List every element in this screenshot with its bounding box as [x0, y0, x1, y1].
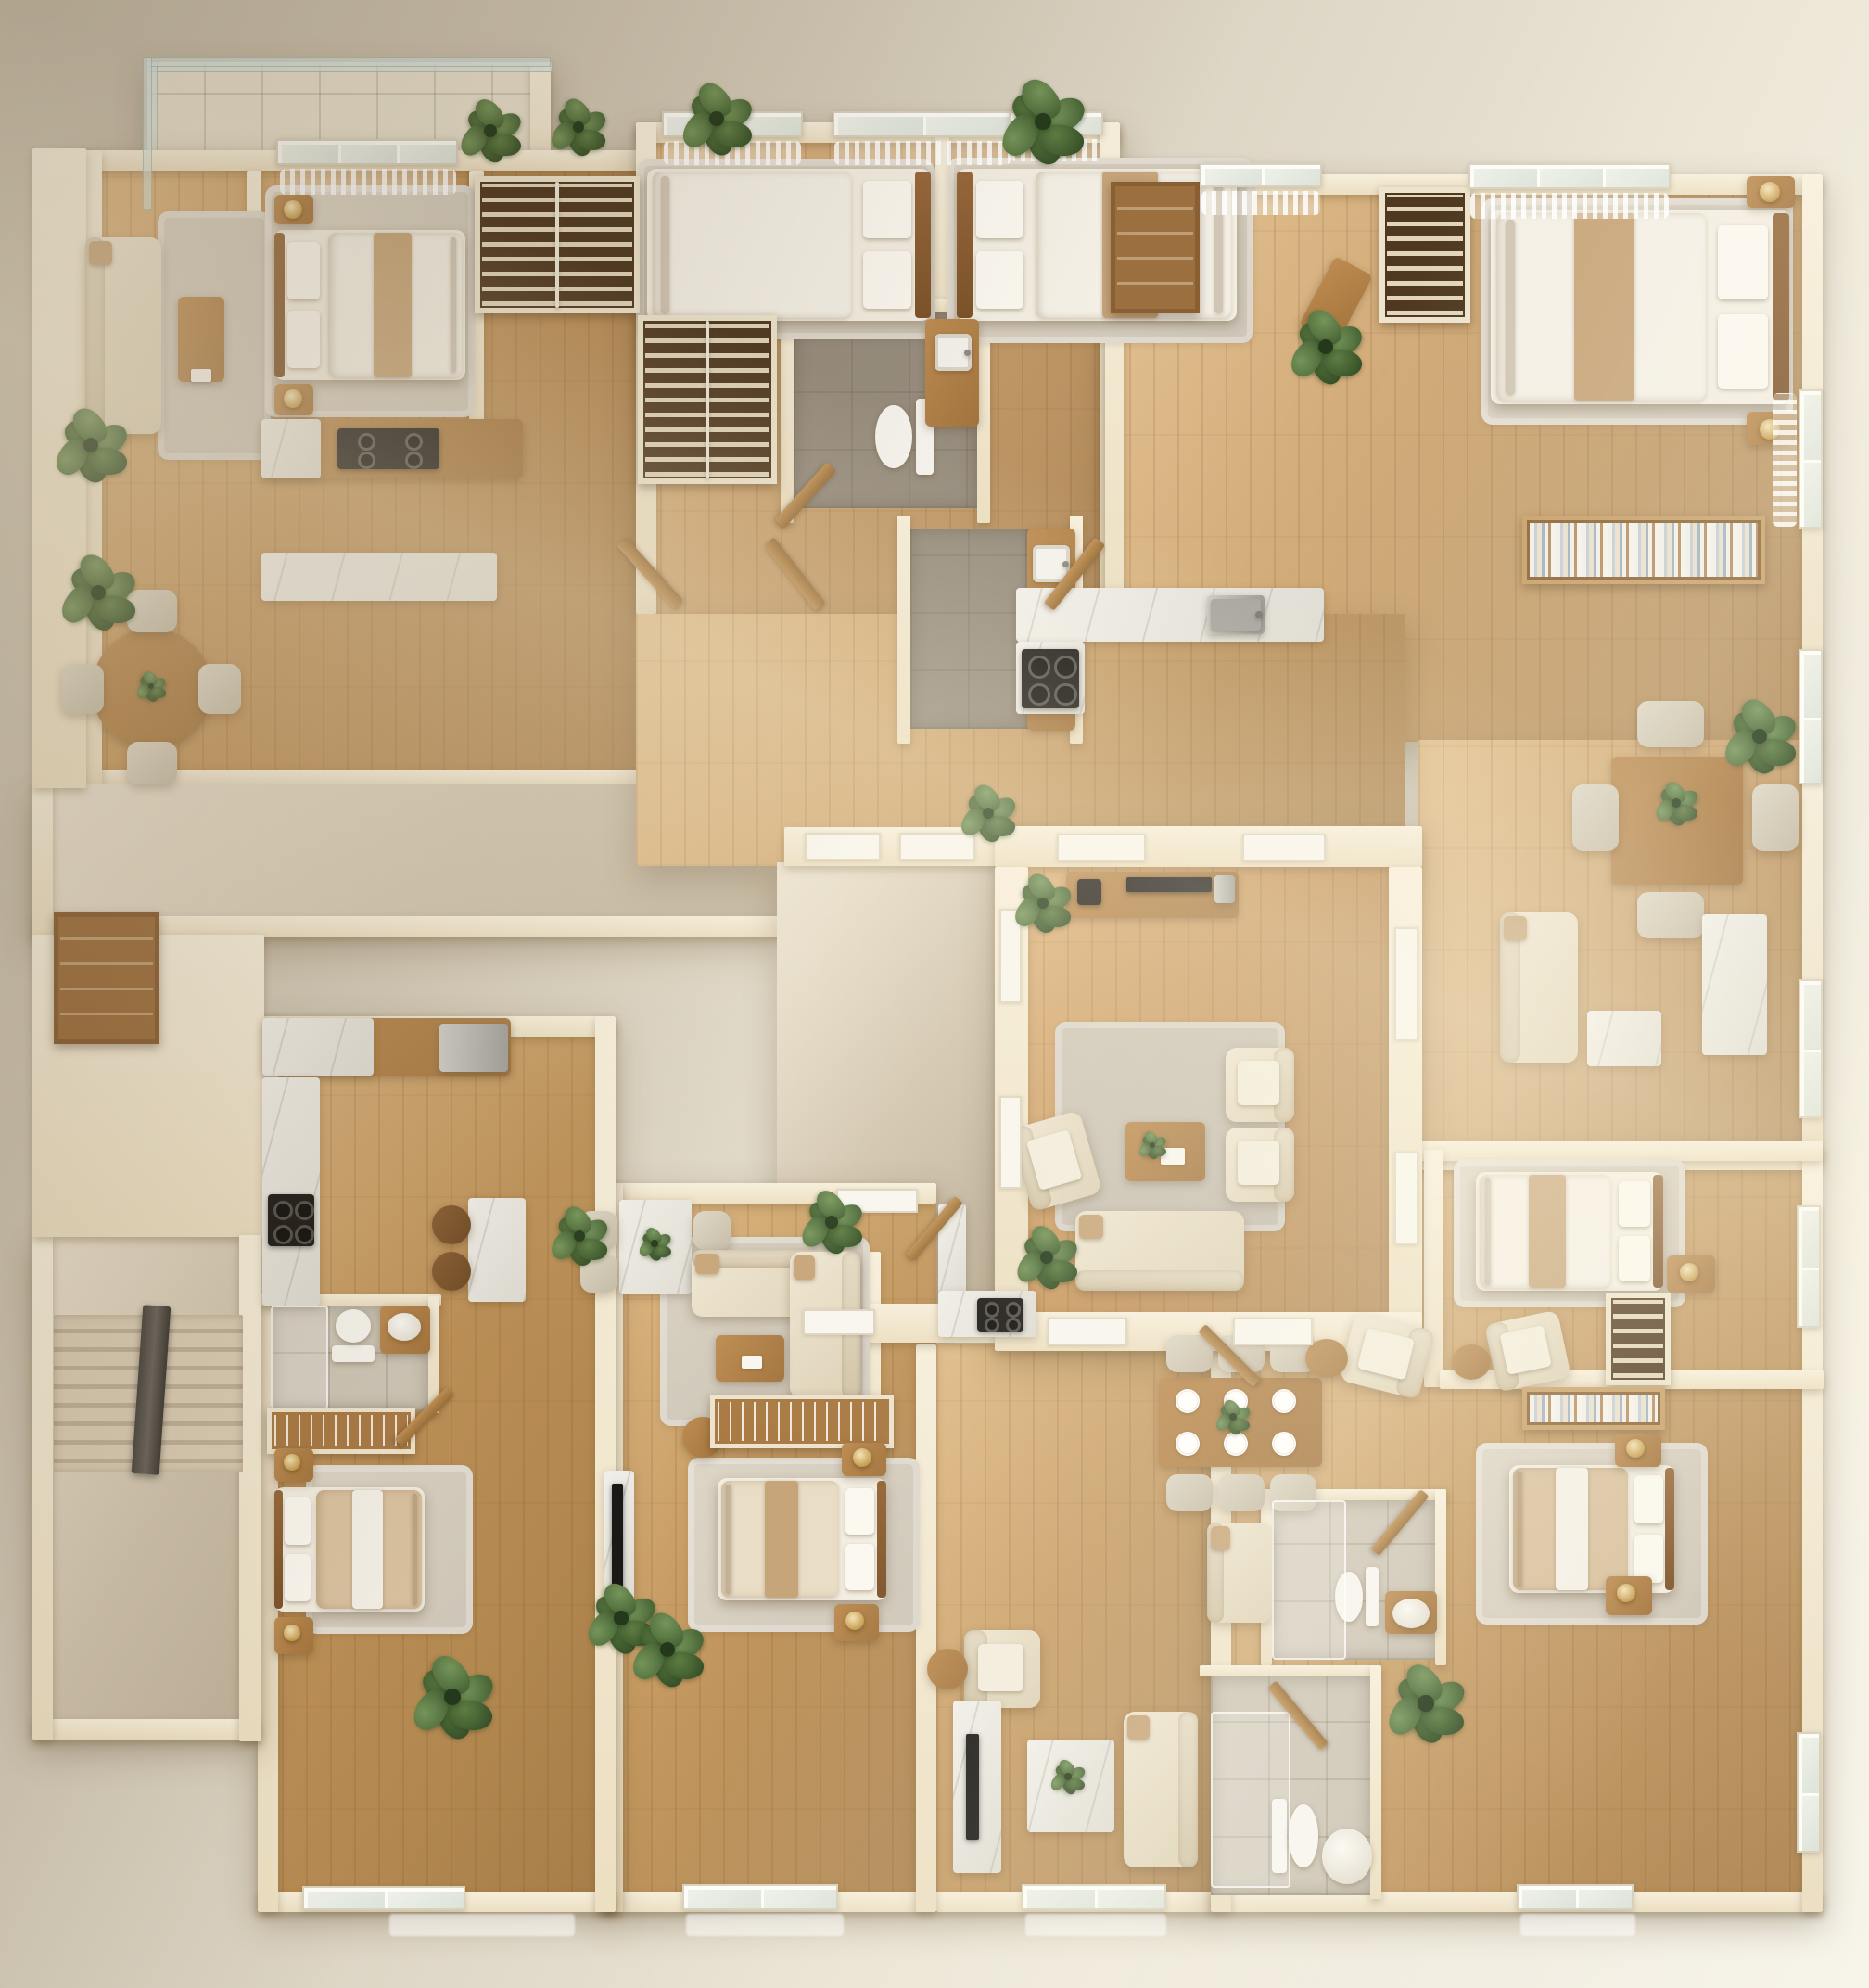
lounge-loveseat: [1124, 1712, 1198, 1867]
studio-armchair-3: [1226, 1128, 1294, 1202]
console-cs-marble-vein: [1702, 914, 1767, 1055]
bookshelf-c-books: [1530, 523, 1758, 577]
loveseat-cs-cushion-pillow: [1504, 916, 1527, 940]
dining-e-chair-3: [693, 1211, 731, 1250]
hanger-rail-g-hangers: [274, 1415, 408, 1446]
bathg-basin: [388, 1313, 421, 1341]
plant-a-dining: [65, 560, 132, 625]
window-cs-2-pane-1: [1804, 1052, 1821, 1117]
bathg-toilet: [332, 1309, 375, 1363]
plant-lounge-table: [1051, 1762, 1085, 1791]
studio-armchair-2-seat: [1238, 1061, 1278, 1105]
studio-coffee-machine: [1077, 879, 1101, 905]
hanger-rail-g: [267, 1408, 415, 1454]
side-table-cs-vein: [1587, 1011, 1661, 1066]
bed-f-1-fold: [1485, 1178, 1491, 1284]
curtain-c-1: [1201, 191, 1320, 215]
curtain-b-2: [834, 141, 1011, 165]
lamp-c-1: [1760, 182, 1780, 202]
window-f-bottom-pane-1: [1579, 1890, 1633, 1908]
window-e-bottom-2: [1022, 1884, 1166, 1910]
window-cs-1-pane-1: [1804, 720, 1821, 784]
cabinet-c-shelves: [1117, 188, 1193, 307]
plant-f-dining: [1216, 1402, 1250, 1432]
bed-c: [1491, 210, 1789, 404]
bed-f-1-throw: [1529, 1175, 1566, 1289]
bed-b-1-duvet: [653, 172, 851, 317]
window-cs-1: [1799, 649, 1823, 784]
wall-stair-right: [239, 1235, 261, 1741]
lamp-g-1: [284, 1454, 300, 1471]
window-cs-1-pane-0: [1804, 655, 1821, 718]
kitchen-g-cooktop: [268, 1194, 314, 1246]
bed-a-pillow-1: [287, 242, 320, 299]
bathf-shower: [1272, 1500, 1346, 1660]
plant-g-bedroom-center: [444, 1689, 461, 1705]
armchair-f-seat: [1357, 1328, 1415, 1381]
curtain-c-right: [1773, 393, 1797, 527]
plant-e-dining: [640, 1230, 669, 1257]
bath2-sink-1-faucet: [1062, 561, 1069, 567]
plant-f-center: [1392, 1660, 1459, 1747]
window-cs-2-pane-0: [1804, 985, 1821, 1050]
reading-chair-f-seat: [1500, 1325, 1552, 1374]
kitchen-c-sink-basin: [1211, 599, 1261, 631]
wall-bathe-top: [1200, 1665, 1379, 1676]
wardrobe-hanger-e: [710, 1395, 894, 1448]
window-b-2: [833, 111, 1012, 137]
bed-e: [718, 1478, 886, 1600]
bed-a-pillow-2: [287, 311, 320, 368]
bed-b-2-pillow-2: [976, 251, 1023, 309]
curtain-c-2: [1470, 193, 1669, 219]
bookshelf-f: [1522, 1387, 1665, 1430]
dining-f-chair-5: [1218, 1474, 1265, 1511]
dining-f-plate-5: [1224, 1432, 1248, 1456]
window-b-2-pane-1: [926, 117, 1011, 135]
closet-linen-a: [475, 176, 640, 313]
bed-e-headboard: [877, 1481, 886, 1599]
kitchenette-cooktop-burner: [1006, 1318, 1022, 1333]
dining-a-chair-s: [127, 742, 177, 784]
cabinet-c: [1111, 182, 1200, 313]
plant-b-top-2: [686, 83, 747, 154]
lamp-e-1: [853, 1448, 871, 1467]
sill-reflection-3: [1025, 1914, 1166, 1936]
bed-f-2-headboard: [1665, 1468, 1674, 1590]
kitchen-c-cooktop-burner: [1054, 656, 1077, 679]
bed-f-2: [1509, 1465, 1674, 1593]
tv-e: [612, 1484, 623, 1593]
unit-g-floor-wall-right: [595, 1016, 616, 1912]
kitchen-c-cooktop: [1022, 649, 1079, 708]
bed-a-fold: [451, 237, 456, 373]
window-a-bedroom-pane-0: [282, 145, 338, 163]
window-f-bottom-pane-0: [1522, 1890, 1576, 1908]
wardrobe-hanger-e-hangers: [718, 1402, 886, 1441]
window-f-right-1-pane-0: [1802, 1211, 1819, 1268]
dining-f-chair-4: [1166, 1474, 1213, 1511]
lamp-a-2: [284, 389, 302, 408]
bed-g-pillow-2: [285, 1554, 311, 1601]
kitchen-a-island-vein: [261, 553, 497, 601]
bathe-toilet-bowl: [1289, 1804, 1318, 1867]
sofa-a-living-cushion-pillow: [89, 241, 112, 265]
bed-c-pillow-1: [1718, 225, 1769, 299]
window-cs-2: [1799, 979, 1823, 1118]
closet-linen-a-divider: [555, 182, 559, 308]
window-e-bottom-1-pane-0: [688, 1890, 761, 1908]
bed-g: [274, 1487, 425, 1612]
bed-b-1: [647, 169, 931, 321]
plant-b-top-1: [554, 98, 603, 156]
dining-cs-chair-s: [1637, 892, 1704, 938]
bed-g-throw: [352, 1490, 382, 1610]
curtain-a-bedroom: [280, 169, 456, 195]
plant-f-center-center: [1418, 1695, 1433, 1711]
kitchen-c-cooktop-burner: [1028, 656, 1051, 679]
sofa-f-wall: [1207, 1523, 1272, 1623]
wall-bath2-left: [897, 516, 910, 744]
bed-c-fold: [1506, 220, 1515, 395]
side-table-cs: [1587, 1011, 1661, 1066]
slot-studio-bottom-2: [1233, 1318, 1313, 1345]
coffee-e-book: [742, 1356, 762, 1369]
kitchen-a-cooktop: [337, 428, 439, 469]
plant-cs-table: [1656, 784, 1697, 822]
window-f-right-1-pane-1: [1802, 1270, 1819, 1327]
bed-b-1-headboard: [915, 172, 931, 317]
plant-hall-desk: [1018, 868, 1068, 938]
studio-armchair-2: [1226, 1048, 1294, 1122]
sill-reflection-4: [1520, 1914, 1635, 1936]
window-a-bedroom-pane-2: [400, 145, 456, 163]
dining-a-chair-w: [61, 664, 104, 714]
kitchen-g-fridge: [439, 1024, 508, 1072]
hall-cabinet: [54, 912, 159, 1044]
sill-reflection-2: [686, 1914, 844, 1936]
slot-studio-left-2: [999, 1096, 1022, 1189]
kitchenette-cooktop-burner: [985, 1318, 1000, 1333]
plant-cs-table-center: [1672, 798, 1681, 808]
stool-g-2: [432, 1252, 471, 1291]
studio-sofa: [1075, 1211, 1244, 1291]
closet-linen-c: [1379, 187, 1470, 323]
dining-f-plate-1: [1176, 1389, 1200, 1413]
plant-g-kitchen: [554, 1205, 604, 1267]
bed-c-headboard: [1773, 213, 1789, 401]
kitchenette-cooktop: [977, 1298, 1023, 1332]
lamp-f-1: [1680, 1263, 1698, 1281]
bed-a-throw: [374, 233, 412, 377]
kitchen-c-sink: [1207, 595, 1265, 634]
bed-b-2-headboard: [957, 172, 973, 317]
terrace-glass-left: [143, 57, 152, 210]
lounge-tv: [966, 1734, 979, 1840]
bed-f-2-fold: [1518, 1472, 1522, 1587]
slot-studio-right-1: [1394, 927, 1418, 1040]
kitchen-g-cooktop-burner: [273, 1225, 293, 1244]
sofa-a-living: [85, 237, 161, 434]
slot-studio-top-1: [1057, 834, 1146, 861]
bed-f-2-pillow-1: [1634, 1475, 1662, 1523]
sill-reflection-1: [389, 1914, 575, 1936]
lamp-f-4: [1617, 1584, 1635, 1602]
dining-f-plate-6: [1272, 1432, 1296, 1456]
window-g-bottom-pane-1: [388, 1892, 464, 1908]
stool-g-1: [432, 1205, 471, 1244]
plant-e-top-center: [825, 1216, 838, 1229]
window-c-2-pane-1: [1540, 169, 1603, 187]
plant-lounge-table-center: [1064, 1773, 1072, 1780]
window-c-1-pane-0: [1205, 169, 1262, 185]
kitchen-a-marble: [261, 419, 321, 478]
bathf-basin: [1392, 1599, 1430, 1628]
lounge-loveseat-cushion-pillow: [1127, 1715, 1150, 1739]
dining-f-plate-3: [1272, 1389, 1296, 1413]
bed-e-fold: [726, 1485, 731, 1595]
window-e-bottom-2-pane-0: [1027, 1890, 1095, 1908]
kitchen-g-marble-top: [262, 1018, 374, 1076]
console-cs-marble: [1702, 914, 1767, 1055]
plant-hall-corner: [964, 786, 1012, 840]
stairwell-floor-wall-bottom: [32, 1719, 261, 1739]
bed-b-1-fold: [661, 176, 669, 313]
bed-a-headboard: [274, 233, 285, 377]
plant-studio-center: [1040, 1251, 1053, 1264]
kitchen-a-cooktop-burner: [405, 452, 423, 469]
kitchen-a-island: [261, 553, 497, 601]
plant-a-table: [137, 673, 165, 699]
bed-c-pillow-2: [1718, 314, 1769, 389]
sofa-a-living-back: [85, 237, 105, 434]
plant-f-dining-center: [1229, 1413, 1237, 1421]
bathf-toilet-tank: [1366, 1567, 1379, 1626]
studio-sofa-back: [1075, 1270, 1244, 1291]
dining-cs-chair-n: [1637, 701, 1704, 747]
kitchen-g-counter-left-vein: [262, 1077, 320, 1306]
dining-a-chair-e: [198, 664, 241, 714]
kitchen-g-island: [468, 1198, 526, 1302]
closet-linen-b: [638, 315, 777, 484]
plant-e-bottom-1-center: [614, 1611, 628, 1625]
studio-sofa-cushion-pillow: [1079, 1215, 1103, 1239]
slot-studio-bottom-1: [1048, 1318, 1127, 1345]
bed-e-pillow-2: [845, 1544, 874, 1590]
wall-bathe-right: [1370, 1665, 1381, 1899]
plant-a-living: [59, 408, 122, 482]
bathe-basin: [1322, 1829, 1372, 1884]
lounge-loveseat-back: [1178, 1712, 1198, 1867]
slot-hallc-south: [803, 1309, 875, 1335]
terrace-glass-top: [146, 57, 551, 67]
window-f-bottom: [1517, 1884, 1634, 1910]
bed-g-headboard: [274, 1490, 283, 1610]
kitchen-a-cooktop-burner: [358, 452, 375, 469]
dining-cs-chair-w: [1572, 784, 1619, 851]
window-g-bottom: [302, 1886, 465, 1910]
plant-e-top: [805, 1192, 858, 1252]
bathg-shower: [271, 1306, 328, 1409]
plant-studio-table: [1138, 1133, 1166, 1157]
kitchen-c-cooktop-burner: [1054, 683, 1077, 707]
lamp-g-2: [284, 1625, 300, 1641]
wc1-sink: [934, 334, 972, 371]
bed-b-1-pillow-1: [863, 181, 911, 238]
window-c-2: [1468, 163, 1671, 189]
bed-b-1-pillow-2: [863, 251, 911, 309]
kitchen-g-cooktop-burner: [295, 1201, 314, 1220]
window-f-right-2: [1797, 1732, 1821, 1853]
studio-armchair-3-seat: [1238, 1141, 1278, 1185]
window-e-bottom-2-pane-1: [1098, 1890, 1165, 1908]
reading-side-table: [1452, 1344, 1491, 1380]
plant-g-bedroom: [417, 1656, 488, 1738]
plant-studio: [1020, 1222, 1074, 1293]
bed-c-throw: [1574, 213, 1634, 401]
plant-b-top-2-center: [709, 111, 724, 126]
kitchen-g-island-vein: [468, 1198, 526, 1302]
dining-f-plate-4: [1176, 1432, 1200, 1456]
plant-e-dining-center: [651, 1240, 657, 1246]
plant-e-bottom-2: [636, 1615, 699, 1684]
studio-desk-laptop: [1214, 875, 1235, 903]
kitchen-g-cooktop-burner: [273, 1201, 293, 1220]
plant-terrace-center: [484, 124, 497, 137]
stairwell-floor-wall-left: [32, 1235, 53, 1739]
kitchenette-cooktop-burner: [1006, 1302, 1022, 1318]
slot-studio-top-2: [1242, 834, 1326, 861]
bed-f-1-headboard: [1653, 1175, 1663, 1289]
wall-e-f: [916, 1344, 936, 1912]
kitchenette-cooktop-burner: [985, 1302, 1000, 1318]
window-c-2-pane-2: [1606, 169, 1669, 187]
window-f-right-2-pane-1: [1802, 1796, 1819, 1852]
kitchen-a-cooktop-burner: [358, 433, 375, 451]
window-f-right-1: [1797, 1205, 1821, 1328]
bed-f-1: [1476, 1172, 1663, 1291]
hall-a-floor-wall-left: [32, 784, 53, 937]
wc1-toilet-bowl: [875, 405, 912, 469]
plant-terrace: [462, 104, 519, 158]
bathg-toilet-bowl: [336, 1309, 372, 1343]
dining-cs-chair-e: [1752, 784, 1799, 851]
window-e-bottom-1: [682, 1884, 838, 1910]
closet-linen-c-linens: [1387, 195, 1463, 315]
plant-c-corner: [1294, 304, 1357, 389]
sofa-e-top-cushion-pillow: [695, 1254, 719, 1274]
window-c-right: [1799, 389, 1823, 529]
plant-cs-corner: [1726, 705, 1793, 768]
lamp-e-2: [845, 1612, 864, 1630]
window-a-bedroom: [276, 139, 458, 165]
studio-desk-tray: [1126, 877, 1212, 892]
bed-f-1-pillow-2: [1619, 1236, 1650, 1281]
window-c-right-pane-0: [1804, 395, 1821, 460]
hall-cabinet-shelves: [60, 919, 153, 1038]
kitchen-a-marble-vein: [261, 419, 321, 478]
wardrobe-linen-f-linens: [1613, 1300, 1663, 1378]
bookshelf-c: [1522, 516, 1765, 584]
bathg-toilet-tank: [332, 1345, 375, 1361]
plant-b-top-3: [1007, 83, 1079, 159]
window-g-bottom-pane-0: [308, 1892, 385, 1908]
slot-studio-right-2: [1394, 1152, 1418, 1244]
wall-bathf-right: [1435, 1489, 1446, 1665]
kitchen-g-counter-left: [262, 1077, 320, 1306]
floor-plan-render: [0, 0, 1869, 1988]
coffee-table-a-paper: [191, 369, 211, 382]
lounge-side-table: [927, 1649, 968, 1689]
closet-linen-b-divider: [706, 321, 709, 478]
window-c-1-pane-1: [1265, 169, 1321, 185]
wall-cs-bottom: [1418, 1141, 1823, 1161]
bed-g-fold: [413, 1494, 417, 1606]
wc1-sink-faucet: [964, 350, 971, 356]
kitchen-a-cooktop-burner: [405, 433, 423, 451]
window-c-2-pane-0: [1474, 169, 1537, 187]
slot-hall-1: [805, 833, 881, 860]
window-c-1: [1200, 163, 1322, 187]
dining-f-chair-1: [1166, 1335, 1213, 1372]
window-e-bottom-1-pane-1: [764, 1890, 837, 1908]
kitchen-c-cooktop-burner: [1028, 683, 1051, 707]
bed-f-1-pillow-1: [1619, 1181, 1650, 1227]
bed-g-pillow-1: [285, 1497, 311, 1545]
bed-a: [274, 230, 465, 380]
bed-e-pillow-1: [845, 1488, 874, 1535]
sofa-f-wall-cushion-pillow: [1211, 1526, 1230, 1550]
bed-b-2-pillow-1: [976, 181, 1023, 238]
bookshelf-f-books: [1530, 1395, 1658, 1422]
window-c-right-pane-1: [1804, 463, 1821, 528]
lounge-armchair: [964, 1630, 1040, 1708]
bed-f-2-throw: [1556, 1468, 1589, 1590]
window-a-bedroom-pane-1: [341, 145, 398, 163]
loveseat-cs: [1500, 912, 1578, 1063]
lamp-a-1: [284, 200, 302, 219]
lounge-armchair-seat: [978, 1644, 1023, 1690]
window-b-2-pane-0: [838, 117, 923, 135]
kitchen-g-cooktop-burner: [295, 1225, 314, 1244]
kitchen-g-marble-top-vein: [262, 1018, 374, 1076]
bathe-shower: [1211, 1712, 1290, 1888]
lamp-f-3: [1626, 1439, 1645, 1458]
kitchen-c-sink-faucet: [1255, 611, 1263, 618]
bed-e-throw: [765, 1481, 798, 1599]
window-f-right-2-pane-0: [1802, 1738, 1819, 1793]
sofa-e-right-cushion-pillow: [794, 1255, 815, 1280]
wardrobe-linen-f: [1606, 1293, 1671, 1385]
